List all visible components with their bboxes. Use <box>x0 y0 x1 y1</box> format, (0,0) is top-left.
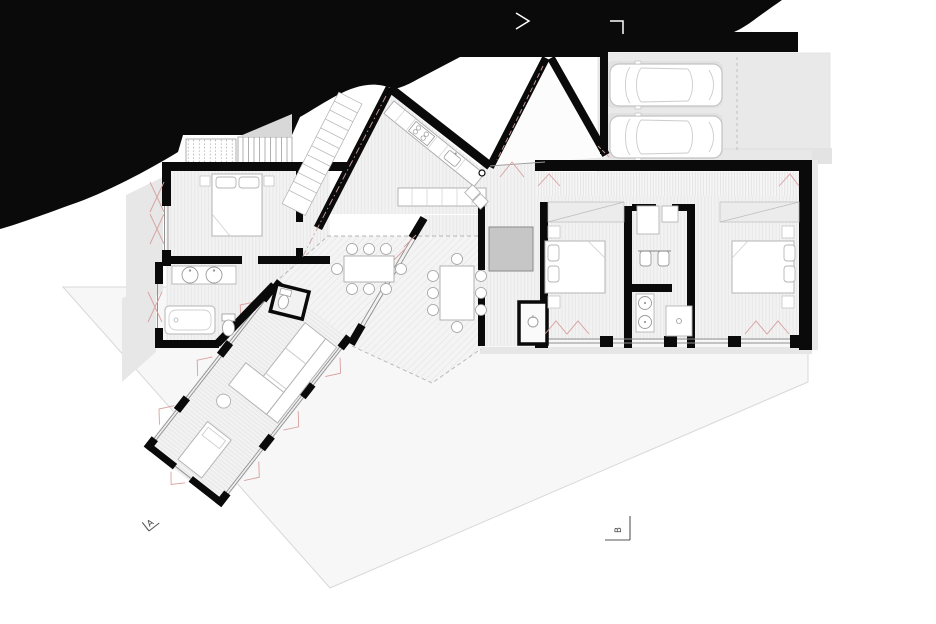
bed-1-pillow-a <box>216 177 236 188</box>
bed-2-pillow-b <box>548 266 559 282</box>
wall-entry-west-b <box>478 292 485 346</box>
nightstand <box>548 226 560 238</box>
entry-courtyard <box>490 57 606 167</box>
wall-bed1-bath-a <box>162 256 242 264</box>
wc-room <box>270 284 309 319</box>
wall-bath-south <box>155 340 219 348</box>
section-marker-a: A <box>142 514 159 531</box>
floor-plan-drawing: A B <box>0 0 936 624</box>
nightstand <box>548 296 560 308</box>
kitchen-island <box>398 185 488 210</box>
floor-corridor <box>537 172 800 198</box>
wall-right-north <box>535 160 812 171</box>
south-pillar-5 <box>790 335 801 348</box>
south-pillar-2 <box>600 336 613 347</box>
wall-bath-divider <box>630 284 672 292</box>
wall-garage-west <box>600 52 608 154</box>
shower <box>666 306 692 336</box>
bidet-icon <box>658 251 669 266</box>
laundry-shelf <box>662 206 678 222</box>
bathtub <box>165 306 215 334</box>
wardrobe-bedroom2 <box>548 202 624 222</box>
toilet-icon <box>222 314 235 336</box>
wardrobe-bedroom3 <box>720 202 799 222</box>
utility-closet <box>519 302 547 344</box>
bed-3-pillow-a <box>784 245 795 261</box>
south-pillar-3 <box>664 336 677 347</box>
section-marker-b: B <box>605 516 630 540</box>
wall-bed1-east-b <box>296 248 303 258</box>
toilet-icon <box>640 251 651 266</box>
nightstand <box>200 176 210 186</box>
east-sill <box>812 160 818 350</box>
car-1 <box>605 61 723 109</box>
section-b-label: B <box>614 527 624 533</box>
floor-plan-canvas: A B <box>0 0 936 624</box>
outdoor-dining-table <box>344 256 394 282</box>
indoor-dining-table <box>440 266 474 320</box>
wall-right-east <box>799 160 812 350</box>
wall-bath-west-a <box>155 262 163 284</box>
basin-icon <box>528 317 538 327</box>
column <box>479 170 485 176</box>
wall-bed2-bath <box>624 206 632 348</box>
south-pillar-4 <box>728 336 741 347</box>
nightstand <box>264 176 274 186</box>
bed-1-pillow-b <box>239 177 259 188</box>
nightstand <box>782 226 794 238</box>
storage-block <box>489 227 533 271</box>
car-2 <box>605 113 723 161</box>
washer-icon <box>637 206 659 234</box>
wall-bed1-bath-b <box>258 256 330 264</box>
south-sill <box>480 347 812 354</box>
nightstand <box>782 296 794 308</box>
bed-2-pillow-a <box>548 245 559 261</box>
bed-3-pillow-b <box>784 266 795 282</box>
